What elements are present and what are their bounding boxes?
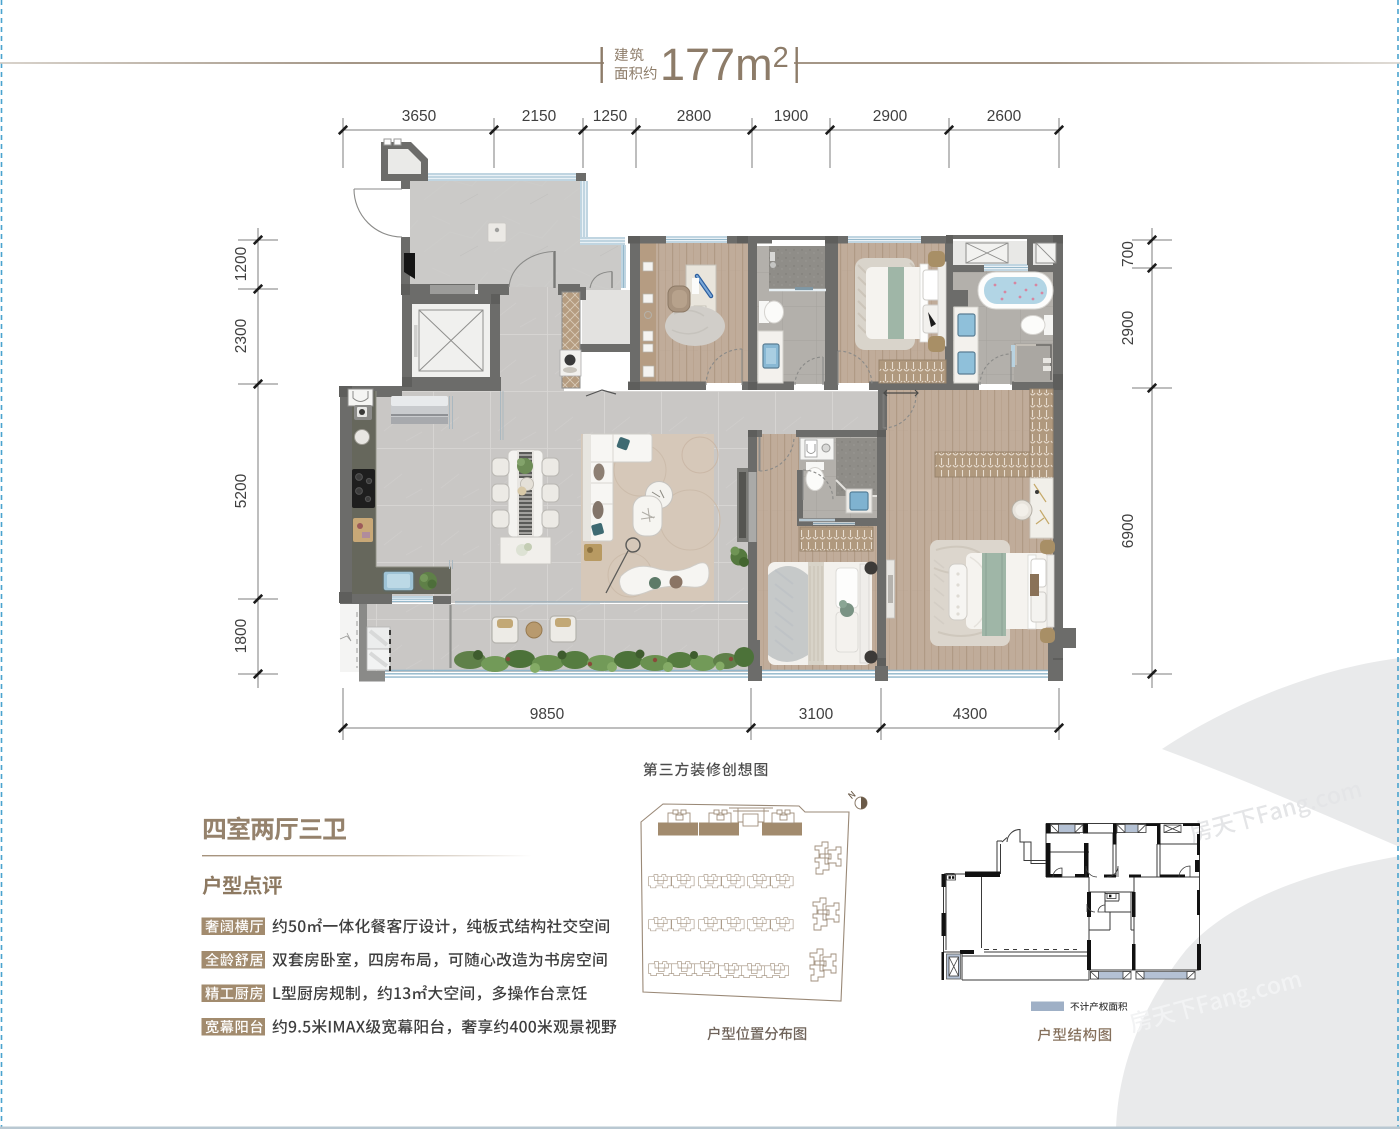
svg-text:9850: 9850 <box>530 706 565 723</box>
svg-text:2300: 2300 <box>233 318 250 353</box>
svg-text:1250: 1250 <box>593 108 628 125</box>
svg-text:4300: 4300 <box>953 706 988 723</box>
svg-text:2800: 2800 <box>677 108 712 125</box>
svg-text:1200: 1200 <box>233 246 250 281</box>
svg-text:3650: 3650 <box>402 108 437 125</box>
svg-text:5200: 5200 <box>233 473 250 508</box>
svg-text:1900: 1900 <box>774 108 809 125</box>
svg-text:2150: 2150 <box>522 108 557 125</box>
svg-text:2900: 2900 <box>1120 310 1137 345</box>
svg-text:3100: 3100 <box>799 706 834 723</box>
svg-text:6900: 6900 <box>1120 513 1137 548</box>
svg-text:2900: 2900 <box>873 108 908 125</box>
svg-text:700: 700 <box>1120 241 1137 267</box>
svg-text:1800: 1800 <box>233 618 250 653</box>
svg-text:2600: 2600 <box>987 108 1022 125</box>
svg-text:177m2: 177m2 <box>660 39 789 90</box>
